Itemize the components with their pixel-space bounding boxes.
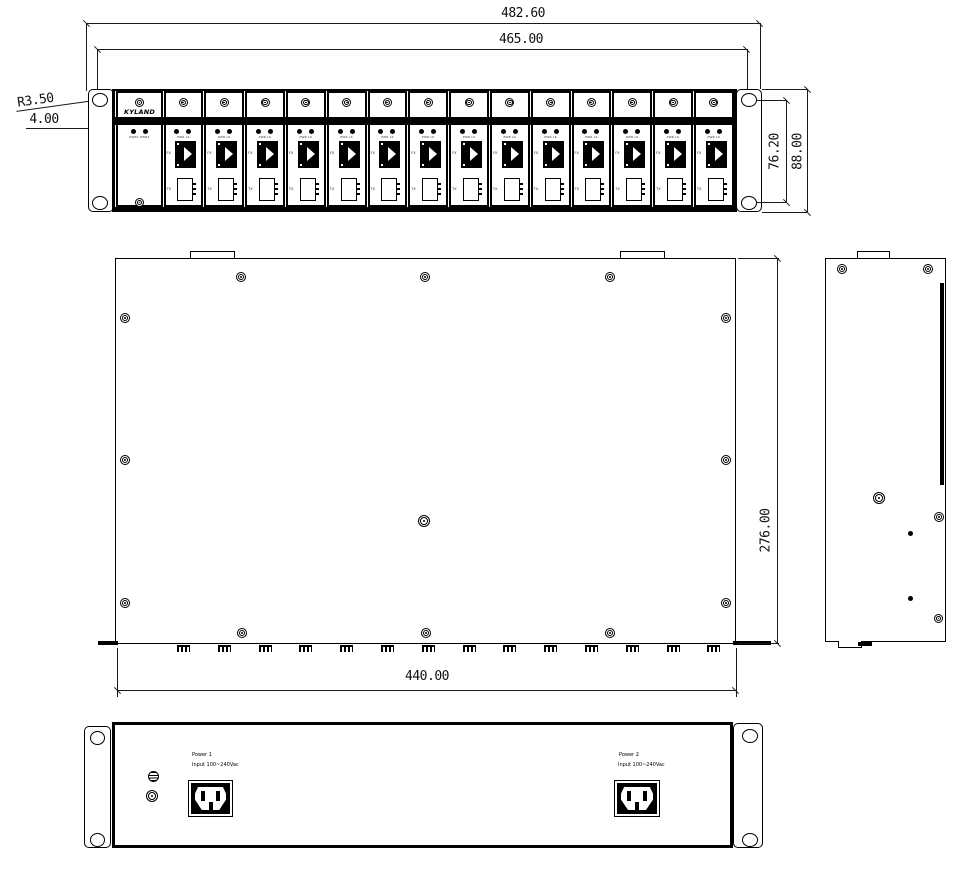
power1-inlet xyxy=(188,780,233,817)
copper-port-label: TX xyxy=(167,187,172,191)
module-edge-mark xyxy=(340,645,353,652)
rj45-port xyxy=(626,178,642,201)
fiber-arrow-icon xyxy=(429,147,437,161)
led-icon xyxy=(297,129,302,134)
screw-icon xyxy=(505,98,514,107)
led-labels: PWR LK xyxy=(370,135,406,139)
copper-port-label: TX xyxy=(207,187,212,191)
ground-symbol-icon xyxy=(148,771,159,782)
screw-icon xyxy=(301,98,310,107)
module-slot-6: PWR LKFXTX xyxy=(368,91,408,207)
ext-line xyxy=(738,258,779,259)
led-icon xyxy=(309,129,314,134)
ext-line xyxy=(86,23,87,91)
fiber-port xyxy=(257,141,278,168)
led-icon xyxy=(419,129,424,134)
ext-line xyxy=(762,89,807,90)
mounting-hole xyxy=(90,731,105,745)
screw-icon xyxy=(628,98,637,107)
fiber-port xyxy=(624,141,645,168)
led-labels: PWR LK xyxy=(696,135,732,139)
power-led-labels: PWR1 PWR2 xyxy=(118,135,161,139)
copper-port-label: TX xyxy=(452,187,457,191)
led-icon xyxy=(350,129,355,134)
led-labels: PWR LK xyxy=(451,135,487,139)
led-icon xyxy=(554,129,559,134)
fiber-port xyxy=(583,141,604,168)
inlet-pin xyxy=(216,791,220,801)
screw-icon xyxy=(465,98,474,107)
screw-icon xyxy=(873,492,885,504)
module-slot-7: PWR LKFXTX xyxy=(408,91,448,207)
mounting-ear-right xyxy=(736,89,762,212)
rj45-port xyxy=(545,178,561,201)
inlet-pin xyxy=(209,802,213,810)
fiber-port-label: FX xyxy=(656,151,660,155)
copper-port-label: TX xyxy=(615,187,620,191)
dim-line xyxy=(86,23,760,24)
module-edge-marks xyxy=(0,245,800,705)
screw-icon xyxy=(383,98,392,107)
fiber-port-label: FX xyxy=(167,151,171,155)
power1-label: Power 1 xyxy=(192,752,212,758)
power2-label: Power 2 xyxy=(619,752,639,758)
led-icon xyxy=(472,129,477,134)
rj45-port xyxy=(504,178,520,201)
module-edge-mark xyxy=(585,645,598,652)
fiber-arrow-icon xyxy=(388,147,396,161)
fiber-arrow-icon xyxy=(552,147,560,161)
led-icon xyxy=(174,129,179,134)
module-edge-mark xyxy=(667,645,680,652)
ext-line xyxy=(757,202,786,203)
dim-line xyxy=(807,89,808,212)
led-labels: PWR LK xyxy=(288,135,324,139)
fiber-arrow-icon xyxy=(633,147,641,161)
mounting-hole xyxy=(742,729,758,743)
rj45-port xyxy=(300,178,316,201)
power-led-icon xyxy=(143,129,148,134)
screw-icon xyxy=(934,512,944,522)
led-icon xyxy=(460,129,465,134)
fiber-port xyxy=(461,141,482,168)
fiber-port-label: FX xyxy=(207,151,211,155)
module-slot-2: PWR LKFXTX xyxy=(204,91,244,207)
rj45-port xyxy=(218,178,234,201)
fiber-arrow-icon xyxy=(470,147,478,161)
led-icon xyxy=(431,129,436,134)
led-icon xyxy=(676,129,681,134)
led-icon xyxy=(594,129,599,134)
led-icon xyxy=(338,129,343,134)
fiber-port xyxy=(339,141,360,168)
copper-port-label: TX xyxy=(656,187,661,191)
front-view: 482.60 465.00 R3.50 4.00 xyxy=(0,0,976,240)
module-edge-mark xyxy=(503,645,516,652)
screw-icon xyxy=(342,98,351,107)
power1-input-label: Input 100~240Vac xyxy=(192,762,239,768)
module-slot-10: PWR LKFXTX xyxy=(531,91,571,207)
ext-line xyxy=(738,643,779,644)
power2-inlet xyxy=(614,780,660,817)
fiber-port xyxy=(706,141,727,168)
screw-icon xyxy=(424,98,433,107)
screw-icon xyxy=(934,614,943,623)
led-labels: PWR LK xyxy=(329,135,365,139)
module-edge-mark xyxy=(381,645,394,652)
led-icon xyxy=(390,129,395,134)
rivet-dot xyxy=(908,596,913,601)
dim-front-height: 88.00 xyxy=(791,122,806,182)
module-edge-mark xyxy=(463,645,476,652)
module-slot-5: PWR LKFXTX xyxy=(327,91,367,207)
screw-icon xyxy=(179,98,188,107)
led-labels: PWR LK xyxy=(410,135,446,139)
led-icon xyxy=(227,129,232,134)
module-slot-8: PWR LKFXTX xyxy=(449,91,489,207)
side-panel xyxy=(825,258,946,642)
copper-port-label: TX xyxy=(493,187,498,191)
rj45-port xyxy=(422,178,438,201)
led-labels: PWR LK xyxy=(166,135,202,139)
led-labels: PWR LK xyxy=(492,135,528,139)
dim-line xyxy=(777,258,778,644)
copper-port-label: TX xyxy=(575,187,580,191)
led-icon xyxy=(513,129,518,134)
module-slot-12: PWR LKFXTX xyxy=(612,91,652,207)
fiber-arrow-icon xyxy=(674,147,682,161)
led-icon xyxy=(705,129,710,134)
power2-input-label: Input 100~240Vac xyxy=(618,762,665,768)
led-labels: PWR LK xyxy=(533,135,569,139)
led-labels: PWR LK xyxy=(247,135,283,139)
copper-port-label: TX xyxy=(371,187,376,191)
mounting-hole xyxy=(742,833,758,847)
led-icon xyxy=(256,129,261,134)
led-icon xyxy=(664,129,669,134)
copper-port-label: TX xyxy=(330,187,335,191)
module-slot-1: PWR LKFXTX xyxy=(164,91,204,207)
inlet-pin xyxy=(201,791,205,801)
module-slot-3: PWR LKFXTX xyxy=(245,91,285,207)
screw-icon xyxy=(837,264,847,274)
module-slot-13: PWR LKFXTX xyxy=(653,91,693,207)
mounting-hole xyxy=(92,93,108,107)
side-rail xyxy=(940,283,944,485)
rj45-port xyxy=(177,178,193,201)
fiber-arrow-icon xyxy=(266,147,274,161)
side-view xyxy=(800,245,976,705)
rj45-port xyxy=(341,178,357,201)
module-edge-mark xyxy=(259,645,272,652)
screw-icon xyxy=(669,98,678,107)
led-icon xyxy=(635,129,640,134)
led-icon xyxy=(378,129,383,134)
dim-hole-vertical-span: 76.20 xyxy=(768,122,783,182)
led-icon xyxy=(542,129,547,134)
fiber-arrow-icon xyxy=(511,147,519,161)
rear-view: Power 1 Input 100~240Vac Power 2 Input 1… xyxy=(0,705,976,882)
dim-line xyxy=(97,49,747,50)
fiber-port-label: FX xyxy=(575,151,579,155)
copper-port-label: TX xyxy=(289,187,294,191)
fiber-port-label: FX xyxy=(493,151,497,155)
module-edge-mark xyxy=(544,645,557,652)
fiber-arrow-icon xyxy=(592,147,600,161)
inlet-pin xyxy=(643,791,647,801)
fiber-port xyxy=(298,141,319,168)
power-led-icon xyxy=(131,129,136,134)
rj45-port xyxy=(463,178,479,201)
fiber-port xyxy=(175,141,196,168)
mounting-hole xyxy=(90,833,105,847)
led-labels: PWR LK xyxy=(206,135,242,139)
led-labels: PWR LK xyxy=(655,135,691,139)
module-edge-mark xyxy=(626,645,639,652)
dim-slot-width: 4.00 xyxy=(24,112,64,127)
dim-chassis-width: 440.00 xyxy=(372,669,482,684)
screw-icon xyxy=(146,790,158,802)
fiber-port-label: FX xyxy=(452,151,456,155)
dim-line xyxy=(117,690,736,691)
fiber-arrow-icon xyxy=(348,147,356,161)
dim-chassis-depth: 276.00 xyxy=(759,496,774,566)
power-slot: KYLAND PWR1 PWR2 xyxy=(116,91,163,207)
mounting-hole xyxy=(92,196,108,210)
module-slot-11: PWR LKFXTX xyxy=(572,91,612,207)
inlet-face xyxy=(617,783,657,814)
screw-icon xyxy=(923,264,933,274)
rj45-port xyxy=(585,178,601,201)
led-labels: PWR LK xyxy=(614,135,650,139)
bottom-connector-mark xyxy=(858,642,872,646)
screw-icon xyxy=(546,98,555,107)
fiber-arrow-icon xyxy=(225,147,233,161)
module-edge-mark xyxy=(218,645,231,652)
front-slots: KYLAND PWR1 PWR2 PWR LKFXTXPWR LKFXTXPWR… xyxy=(115,91,734,207)
fiber-port xyxy=(502,141,523,168)
mounting-hole xyxy=(741,196,757,210)
technical-drawing: 482.60 465.00 R3.50 4.00 xyxy=(0,0,976,882)
copper-port-label: TX xyxy=(534,187,539,191)
screw-icon xyxy=(709,98,718,107)
module-slot-14: PWR LKFXTX xyxy=(694,91,734,207)
brand-logo: KYLAND xyxy=(118,108,161,116)
led-icon xyxy=(582,129,587,134)
fiber-port-label: FX xyxy=(330,151,334,155)
fiber-port-label: FX xyxy=(697,151,701,155)
ext-line xyxy=(757,100,786,101)
fiber-port xyxy=(543,141,564,168)
fiber-port-label: FX xyxy=(615,151,619,155)
inlet-pin xyxy=(635,802,639,810)
fiber-arrow-icon xyxy=(307,147,315,161)
screw-icon xyxy=(135,198,144,207)
fiber-port-label: FX xyxy=(248,151,252,155)
rivet-dot xyxy=(908,531,913,536)
dim-overall-width: 482.60 xyxy=(468,6,578,21)
copper-port-label: TX xyxy=(697,187,702,191)
module-edge-mark xyxy=(177,645,190,652)
copper-port-label: TX xyxy=(411,187,416,191)
rj45-port xyxy=(259,178,275,201)
inlet-face xyxy=(191,783,230,814)
fiber-port xyxy=(216,141,237,168)
dim-mounting-span: 465.00 xyxy=(466,32,576,47)
module-slot-4: PWR LKFXTX xyxy=(286,91,326,207)
ext-line xyxy=(762,212,807,213)
mounting-ear-left xyxy=(88,89,114,212)
fiber-port-label: FX xyxy=(371,151,375,155)
rj45-port xyxy=(381,178,397,201)
fiber-arrow-icon xyxy=(184,147,192,161)
module-edge-mark xyxy=(299,645,312,652)
copper-port-label: TX xyxy=(248,187,253,191)
mounting-hole xyxy=(741,93,757,107)
dim-line xyxy=(786,100,787,202)
module-edge-mark xyxy=(707,645,720,652)
front-black-band xyxy=(115,117,734,125)
fiber-port-label: FX xyxy=(534,151,538,155)
ext-line xyxy=(760,23,761,89)
rj45-port xyxy=(667,178,683,201)
top-view: 440.00 276.00 xyxy=(0,245,800,705)
fiber-port xyxy=(379,141,400,168)
led-icon xyxy=(623,129,628,134)
fiber-port xyxy=(420,141,441,168)
rj45-port xyxy=(708,178,724,201)
front-panel-body: KYLAND PWR1 PWR2 PWR LKFXTXPWR LKFXTXPWR… xyxy=(112,89,737,212)
led-icon xyxy=(717,129,722,134)
led-icon xyxy=(215,129,220,134)
fiber-port-label: FX xyxy=(289,151,293,155)
screw-icon xyxy=(587,98,596,107)
fiber-port xyxy=(665,141,686,168)
module-edge-mark xyxy=(422,645,435,652)
led-icon xyxy=(501,129,506,134)
led-icon xyxy=(268,129,273,134)
module-slot-9: PWR LKFXTX xyxy=(490,91,530,207)
screw-icon xyxy=(261,98,270,107)
inlet-pin xyxy=(627,791,631,801)
fiber-arrow-icon xyxy=(715,147,723,161)
led-labels: PWR LK xyxy=(574,135,610,139)
fiber-port-label: FX xyxy=(411,151,415,155)
screw-icon xyxy=(220,98,229,107)
screw-icon xyxy=(135,98,144,107)
led-icon xyxy=(186,129,191,134)
